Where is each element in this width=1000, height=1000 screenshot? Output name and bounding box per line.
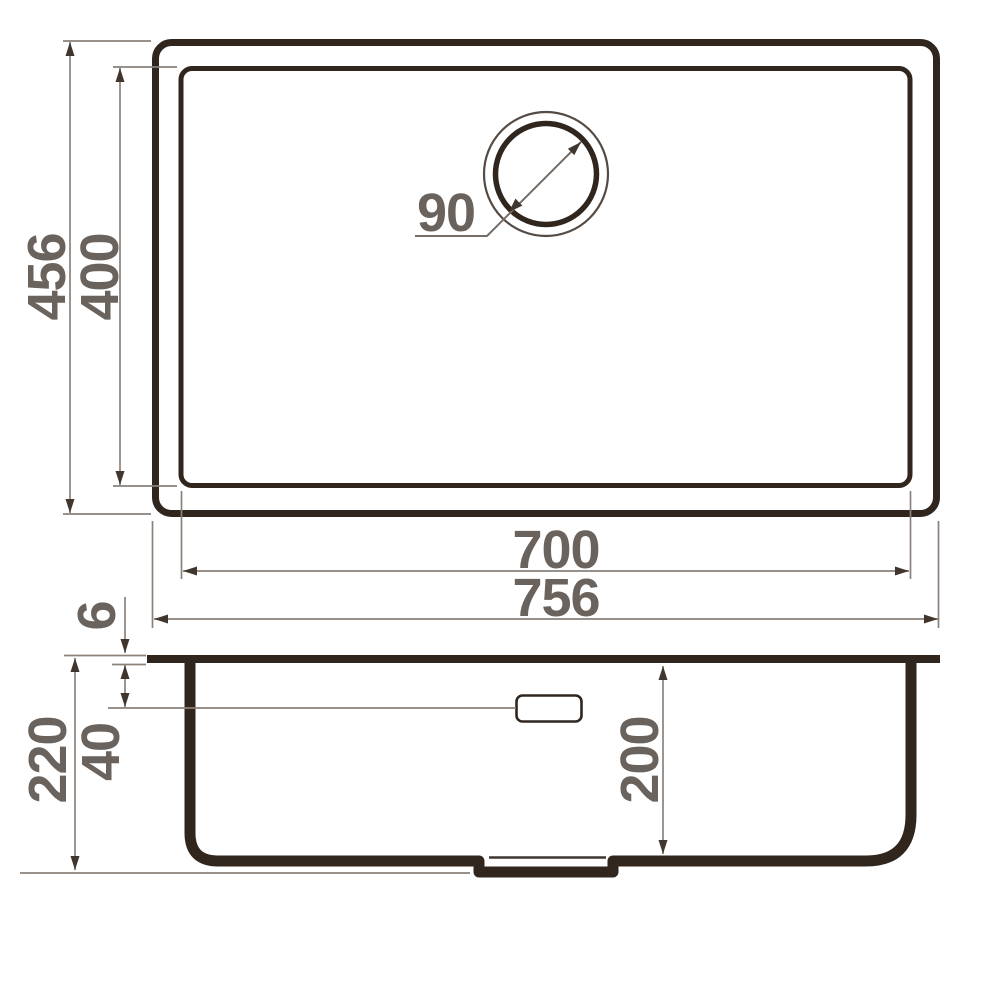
side-view-dimension-lines [75,597,663,870]
dim-label-bowl-height: 200 [610,716,670,803]
dim-label-rim-thickness: 6 [67,601,127,630]
sink-rim-profile [147,655,940,663]
drain-diameter-arrowhead [509,199,522,212]
sink-outer-edge [156,43,937,514]
dim-label-overflow-offset: 40 [71,723,131,781]
overflow-opening [517,696,582,722]
dim-label-overall-height: 220 [18,716,78,803]
drain-outer-circle [484,112,608,236]
top-view-extension-lines [63,41,939,628]
sink-dimension-drawing: 456 400 90 700 756 [0,0,1000,1000]
dim-label-bowl-depth: 400 [70,233,130,320]
technical-drawing-canvas: 456 400 90 700 756 [0,0,1000,1000]
dim-label-drain-diameter: 90 [417,183,475,243]
dim-label-overall-width: 756 [512,568,599,628]
dim-label-overall-depth: 456 [17,233,77,320]
bowl-profile [190,660,911,872]
side-view: 6 40 220 200 [18,597,940,873]
top-view: 456 400 90 700 756 [17,41,939,628]
bowl-inner-edge [181,69,910,486]
